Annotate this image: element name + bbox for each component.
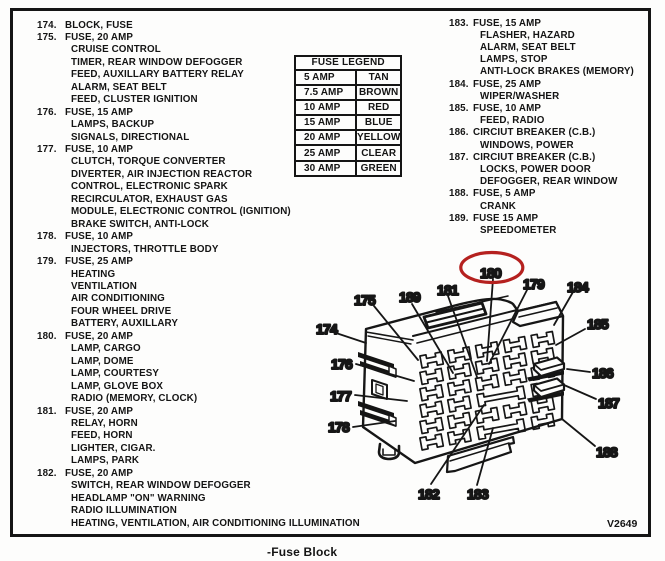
- svg-text:176: 176: [331, 356, 353, 372]
- svg-text:183: 183: [467, 486, 489, 502]
- svg-text:186: 186: [592, 365, 614, 381]
- svg-text:182: 182: [418, 486, 440, 502]
- svg-text:184: 184: [567, 279, 589, 295]
- svg-text:174: 174: [316, 321, 338, 337]
- svg-text:178: 178: [328, 419, 350, 435]
- svg-text:181: 181: [437, 282, 459, 298]
- svg-text:188: 188: [596, 444, 618, 460]
- svg-text:189: 189: [399, 289, 421, 305]
- svg-text:185: 185: [587, 316, 609, 332]
- svg-text:175: 175: [354, 292, 376, 308]
- svg-text:179: 179: [523, 276, 545, 292]
- svg-text:180: 180: [480, 265, 502, 281]
- svg-text:177: 177: [330, 388, 352, 404]
- svg-text:187: 187: [598, 395, 620, 411]
